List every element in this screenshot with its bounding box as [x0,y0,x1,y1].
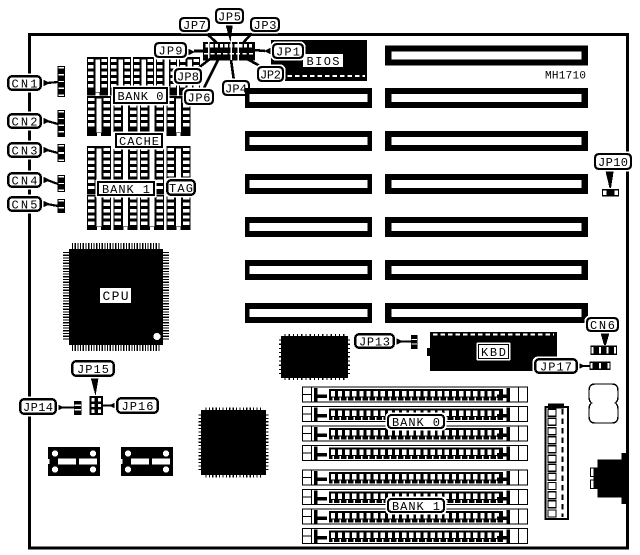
svg-text:JP6: JP6 [188,91,211,105]
svg-text:BANK 0: BANK 0 [118,90,164,104]
svg-text:BIOS: BIOS [307,55,340,69]
svg-text:JP4: JP4 [225,82,247,96]
svg-text:JP9: JP9 [159,44,183,58]
svg-text:CN2: CN2 [12,115,38,129]
svg-text:BANK 0: BANK 0 [392,416,440,430]
svg-text:JP15: JP15 [77,363,109,377]
svg-text:CN4: CN4 [12,174,38,188]
svg-text:JP13: JP13 [359,335,390,349]
svg-text:CACHE: CACHE [119,135,159,149]
svg-text:JP10: JP10 [598,156,628,170]
svg-text:BANK 1: BANK 1 [392,500,440,514]
svg-text:JP8: JP8 [177,70,199,84]
svg-text:JP3: JP3 [254,19,277,33]
svg-text:MH1710: MH1710 [545,71,586,83]
svg-text:CN3: CN3 [12,144,38,158]
svg-text:JP5: JP5 [218,10,241,24]
svg-text:JP16: JP16 [122,400,154,414]
svg-text:JP7: JP7 [183,19,206,33]
svg-text:CN1: CN1 [12,77,38,91]
svg-text:JP1: JP1 [276,45,300,59]
svg-text:CN5: CN5 [12,198,38,212]
svg-text:CN6: CN6 [590,319,615,333]
svg-text:BANK 1: BANK 1 [102,183,150,197]
svg-text:CPU: CPU [103,289,129,304]
svg-text:JP14: JP14 [23,401,53,415]
svg-text:KBD: KBD [481,346,506,360]
svg-text:TAG: TAG [169,182,193,196]
svg-text:JP2: JP2 [260,68,281,82]
svg-text:JP17: JP17 [540,360,572,374]
